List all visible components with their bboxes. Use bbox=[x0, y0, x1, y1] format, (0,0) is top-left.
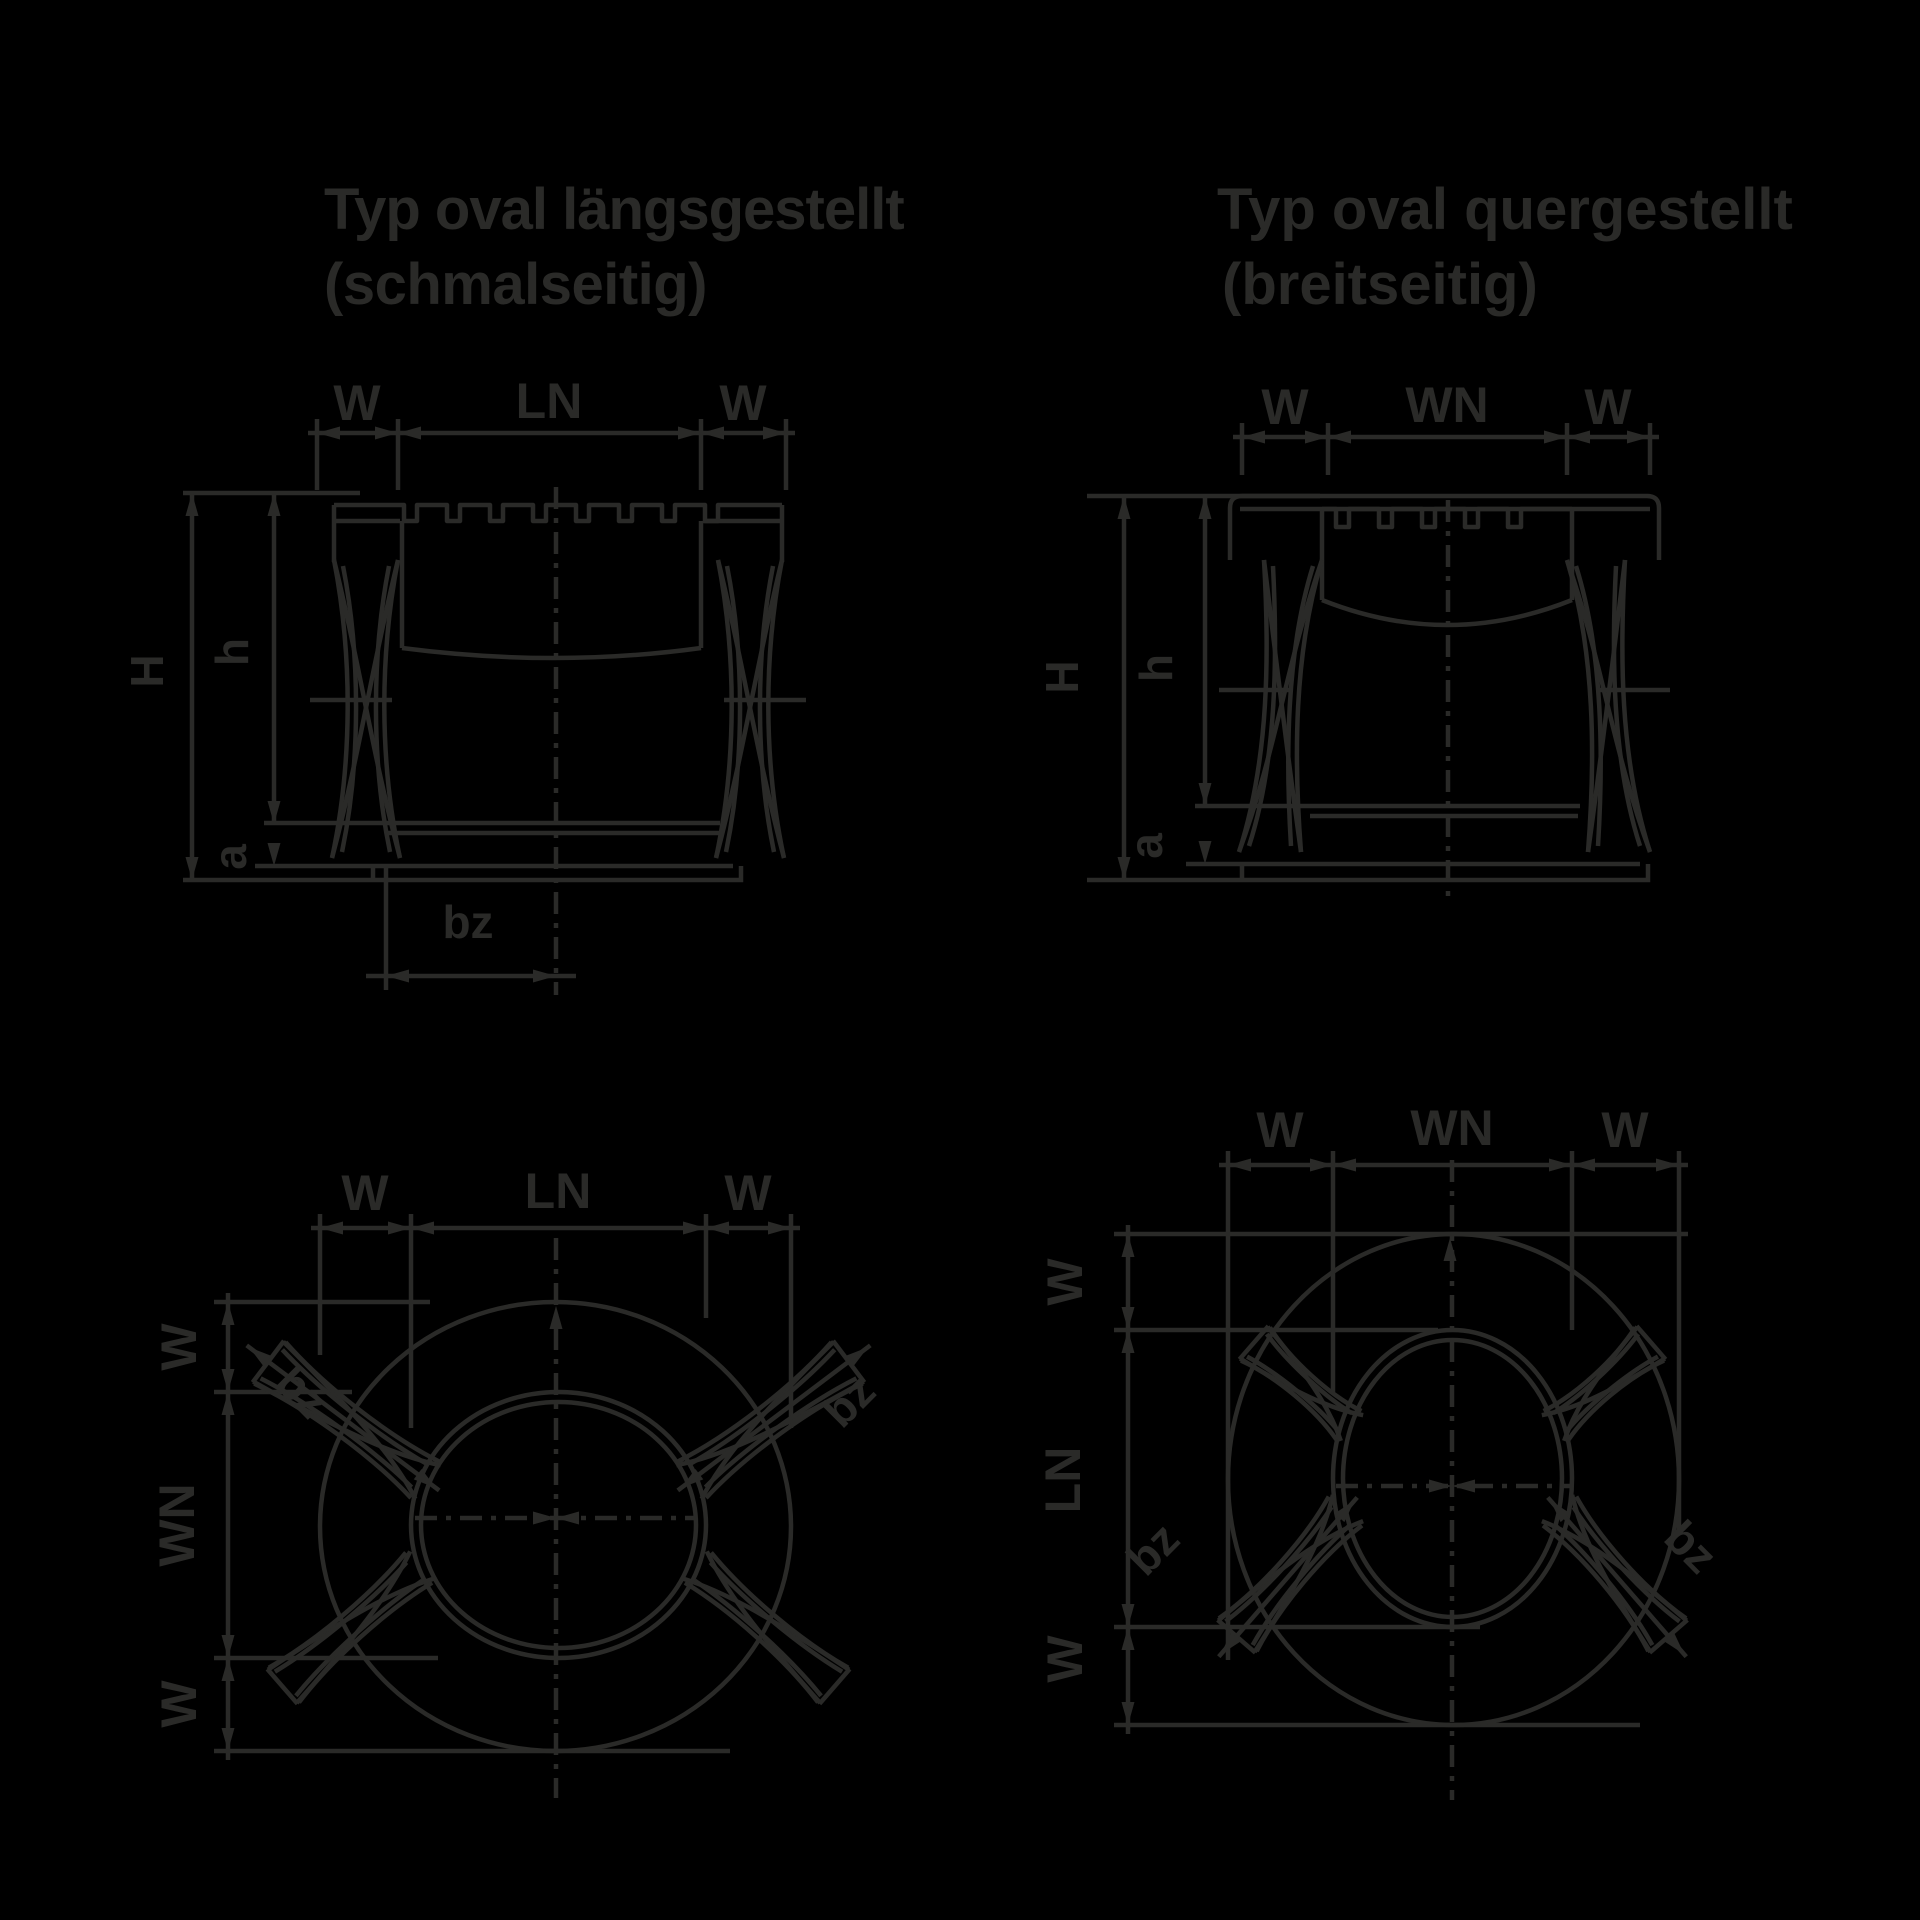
svg-text:h: h bbox=[1130, 654, 1182, 682]
svg-text:W: W bbox=[151, 1323, 207, 1371]
svg-text:a: a bbox=[204, 844, 256, 870]
svg-text:LN: LN bbox=[525, 1163, 592, 1219]
svg-text:W: W bbox=[1037, 1258, 1093, 1306]
svg-text:bz: bz bbox=[812, 1364, 885, 1437]
svg-text:W: W bbox=[724, 1165, 772, 1221]
svg-text:W: W bbox=[333, 375, 381, 431]
svg-text:W: W bbox=[341, 1165, 389, 1221]
svg-text:W: W bbox=[1037, 1635, 1093, 1683]
svg-text:(breitseitig): (breitseitig) bbox=[1222, 252, 1538, 317]
svg-text:WN: WN bbox=[1405, 377, 1488, 433]
svg-text:W: W bbox=[719, 375, 767, 431]
svg-text:h: h bbox=[206, 638, 258, 666]
svg-text:H: H bbox=[121, 654, 173, 687]
svg-text:W: W bbox=[1601, 1102, 1649, 1158]
svg-text:LN: LN bbox=[516, 373, 583, 429]
svg-text:WN: WN bbox=[149, 1483, 205, 1566]
svg-text:LN: LN bbox=[1035, 1447, 1091, 1514]
svg-text:W: W bbox=[1584, 379, 1632, 435]
svg-text:Typ oval längsgestellt: Typ oval längsgestellt bbox=[324, 177, 904, 242]
svg-text:bz: bz bbox=[442, 896, 493, 948]
svg-text:WN: WN bbox=[1410, 1100, 1493, 1156]
svg-text:W: W bbox=[151, 1680, 207, 1728]
svg-text:Typ oval quergestellt: Typ oval quergestellt bbox=[1217, 177, 1793, 242]
svg-text:H: H bbox=[1036, 660, 1088, 693]
svg-text:a: a bbox=[1120, 833, 1172, 859]
svg-text:W: W bbox=[1261, 379, 1309, 435]
svg-text:(schmalseitig): (schmalseitig) bbox=[324, 252, 707, 317]
svg-text:bz: bz bbox=[1655, 1510, 1728, 1583]
svg-text:W: W bbox=[1256, 1102, 1304, 1158]
